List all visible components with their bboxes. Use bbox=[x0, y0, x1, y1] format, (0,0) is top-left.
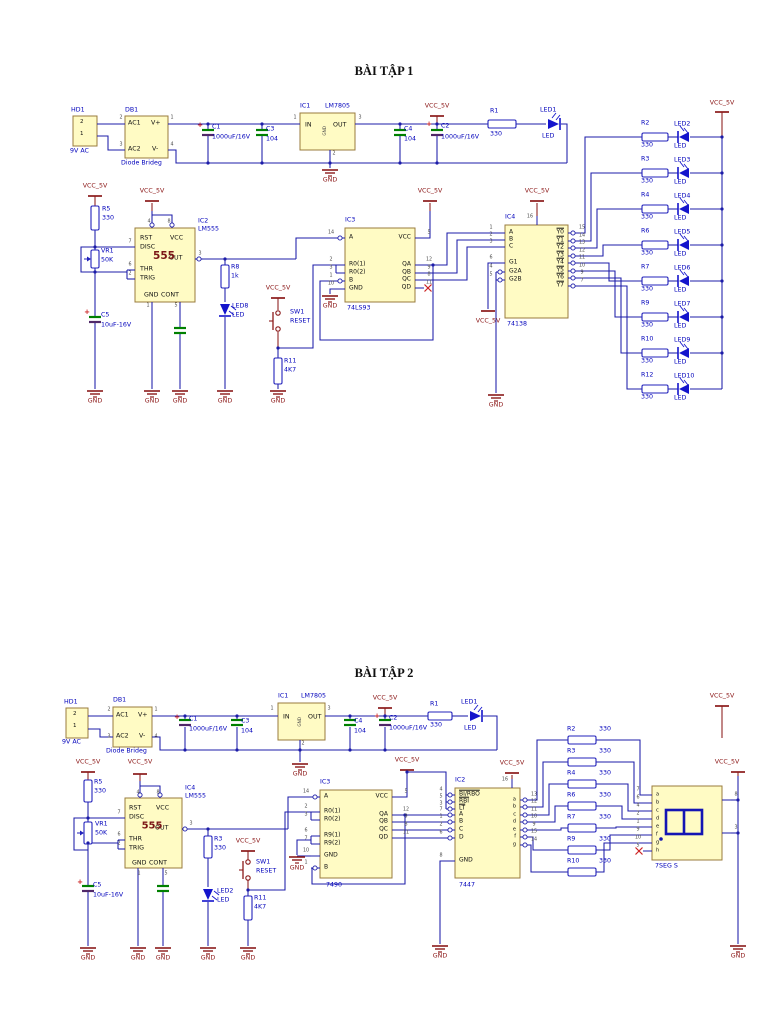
label: 4 bbox=[147, 220, 150, 225]
label: 1 bbox=[154, 708, 157, 713]
ic2-7447-pin-name: d bbox=[513, 819, 516, 824]
label: CONT bbox=[149, 861, 167, 867]
ic3-7490-pin-name: GND bbox=[324, 853, 338, 859]
ic3-74ls93-pin-name: QD bbox=[402, 285, 411, 291]
ic2-7447-pin-number: 10 bbox=[531, 815, 537, 820]
gnd-label: GND bbox=[323, 178, 337, 184]
seven-seg-display-pin-number: 2 bbox=[636, 812, 639, 817]
ic4-74138-pin-name: G1 bbox=[509, 260, 517, 266]
label: AC1 bbox=[116, 713, 129, 719]
label: LED4 bbox=[674, 194, 690, 200]
label: V- bbox=[139, 734, 145, 740]
label: LED8 bbox=[232, 304, 248, 310]
label: R4 bbox=[641, 193, 649, 199]
label: LED bbox=[674, 144, 686, 150]
ic3-7490-pin-name: QD bbox=[379, 835, 388, 841]
ic4-74138-pin-name: G2A bbox=[509, 269, 522, 275]
ic2-7447-pin-number: 1 bbox=[439, 815, 442, 820]
label: C4 bbox=[354, 719, 362, 725]
gnd-label: GND bbox=[293, 772, 307, 778]
label: 8 bbox=[167, 220, 170, 225]
gnd-label: GND bbox=[271, 399, 285, 405]
ic3-74ls93-pin-name: QA bbox=[402, 262, 411, 268]
schematic-page: IC374LS93A14R0(1)2R0(2)3B1GND10VCC5QA12Q… bbox=[0, 0, 768, 1024]
label: 2 bbox=[73, 712, 77, 718]
label: 4 bbox=[154, 735, 157, 740]
label: VCC bbox=[156, 806, 169, 812]
title-exercise-2: BÀI TẬP 2 bbox=[355, 667, 414, 680]
label: LED bbox=[674, 324, 686, 330]
ic3-74ls93-pin-name: GND bbox=[349, 286, 363, 292]
label: 1 bbox=[170, 116, 173, 121]
label: 330 bbox=[641, 179, 653, 185]
label: 1 bbox=[137, 872, 140, 877]
gnd-label: GND bbox=[156, 956, 170, 962]
ic2-7447-pin-number: 14 bbox=[531, 838, 537, 843]
label: 2 bbox=[301, 742, 304, 747]
label: 3 bbox=[107, 735, 110, 740]
ic2-7447-pin-name: a bbox=[513, 797, 516, 802]
label: 1000uF/16V bbox=[389, 726, 427, 732]
label: C5 bbox=[93, 883, 101, 889]
label: LM555 bbox=[185, 794, 206, 800]
label: LED1 bbox=[540, 108, 556, 114]
label: R11 bbox=[284, 359, 296, 365]
ic2-7447-pin-name: b bbox=[513, 804, 516, 809]
label: 6 bbox=[128, 263, 131, 268]
label: LED bbox=[674, 180, 686, 186]
label: 330 bbox=[641, 143, 653, 149]
ic4-74138-pin-name: Y4 bbox=[557, 260, 564, 266]
ic4-74138-pin-number: 16 bbox=[527, 215, 533, 220]
label: R6 bbox=[641, 229, 649, 235]
label: V+ bbox=[138, 713, 148, 719]
label: 10uF-16V bbox=[93, 893, 123, 899]
label: 2 bbox=[80, 120, 84, 126]
label: VCC bbox=[170, 236, 183, 242]
label: VR1 bbox=[101, 249, 114, 255]
label: 50K bbox=[101, 258, 113, 264]
seven-seg-display-pin-number: 6 bbox=[636, 796, 639, 801]
label: R3 bbox=[641, 157, 649, 163]
label: 3 bbox=[119, 143, 122, 148]
ic2-7447-pin-number: 9 bbox=[532, 823, 535, 828]
label: + bbox=[426, 121, 432, 128]
ic2-part: LM555 bbox=[198, 227, 219, 233]
label: LED9 bbox=[674, 338, 690, 344]
ic2-7447-pin-name: D bbox=[459, 835, 464, 841]
label: R1 bbox=[430, 702, 438, 708]
db1-part: Diode Brideg bbox=[121, 161, 162, 167]
ic4-74138-pin-name: Y7 bbox=[557, 283, 564, 289]
label: 104 bbox=[266, 137, 278, 143]
ic3-7490-pin-number: 3 bbox=[304, 813, 307, 818]
ic3-7490-pin-number: 2 bbox=[304, 805, 307, 810]
gnd-label: GND bbox=[433, 954, 447, 960]
vcc-label: VCC_5V bbox=[76, 760, 101, 766]
label: LED bbox=[674, 396, 686, 402]
title-exercise-1: BÀI TẬP 1 bbox=[355, 65, 414, 78]
ic2-555-label: 555 bbox=[153, 251, 175, 262]
label: AC2 bbox=[128, 147, 141, 153]
label: 5 bbox=[164, 872, 167, 877]
label: IN bbox=[283, 715, 290, 721]
ic3-74ls93-pin-name: B bbox=[349, 278, 353, 284]
ic3-7490-pin-name: QB bbox=[379, 819, 388, 825]
label: LED bbox=[674, 360, 686, 366]
seven-seg-display-pin-name: d bbox=[656, 816, 659, 821]
vcc-label: VCC_5V bbox=[476, 319, 501, 325]
label: OUT bbox=[333, 123, 346, 129]
label: R3 bbox=[214, 837, 222, 843]
ic4-74138-pin-number: 14 bbox=[579, 234, 585, 239]
gnd-label: GND bbox=[218, 399, 232, 405]
label: IC1 bbox=[278, 694, 288, 700]
label: LED6 bbox=[674, 266, 690, 272]
label: RST bbox=[129, 806, 141, 812]
label: C5 bbox=[101, 313, 109, 319]
ic2-7447-pin-name: C bbox=[459, 827, 463, 833]
label: R2 bbox=[567, 727, 575, 733]
ic2-7447-pin-name: c bbox=[513, 812, 516, 817]
gnd-label: GND bbox=[489, 403, 503, 409]
ic3-7490-pin-number: 8 bbox=[404, 823, 407, 828]
label: LED7 bbox=[674, 302, 690, 308]
label: 330 bbox=[430, 723, 442, 729]
vcc-label: VCC_5V bbox=[140, 189, 165, 195]
vcc-label: VCC_5V bbox=[425, 104, 450, 110]
label: Diode Brideg bbox=[106, 749, 147, 755]
ic3-7490-pin-number: 11 bbox=[403, 831, 409, 836]
label: HD1 bbox=[64, 700, 78, 706]
label: RST bbox=[140, 236, 152, 242]
label: 4 bbox=[136, 791, 139, 796]
label: 330 bbox=[599, 771, 611, 777]
label: 330 bbox=[641, 215, 653, 221]
label: 1 bbox=[73, 724, 77, 730]
label: 8 bbox=[156, 791, 159, 796]
label: + bbox=[84, 309, 90, 316]
ic3-74ls93-pin-number: 9 bbox=[427, 266, 430, 271]
gnd-label: GND bbox=[241, 956, 255, 962]
ic4-74138-pin-name: Y2 bbox=[557, 245, 564, 251]
label: 330 bbox=[94, 789, 106, 795]
ic2-7447-pin-number: 15 bbox=[531, 830, 537, 835]
label: LED bbox=[464, 726, 476, 732]
ic1-ref: IC1 bbox=[300, 104, 310, 110]
ic3-7490-pin-number: 12 bbox=[403, 808, 409, 813]
label: C1 bbox=[212, 125, 220, 131]
ic2-7447-pin-name: B bbox=[459, 819, 463, 825]
ic4-555-label: 555 bbox=[142, 822, 163, 832]
label: R9 bbox=[641, 301, 649, 307]
seven-seg-display-pin-number: 1 bbox=[636, 820, 639, 825]
label: R5 bbox=[94, 780, 102, 786]
label: LED5 bbox=[674, 230, 690, 236]
vcc-label: VCC_5V bbox=[395, 758, 420, 764]
ic3-74ls93-pin-number: 1 bbox=[329, 274, 332, 279]
ic4-74138-pin-name: G2B bbox=[509, 277, 522, 283]
ic3-7490-pin-name: R0(1) bbox=[324, 809, 341, 815]
label: THR bbox=[129, 837, 142, 843]
ic3-7490-pin-name: R0(2) bbox=[324, 817, 341, 823]
label: 7 bbox=[128, 240, 131, 245]
seven-seg-display-pin-number: 4 bbox=[636, 804, 639, 809]
ic4-74138-pin-name: Y6 bbox=[557, 275, 564, 281]
vcc-label: VCC_5V bbox=[715, 760, 740, 766]
label: 6 bbox=[117, 833, 120, 838]
label: LED1 bbox=[461, 700, 477, 706]
label: R11 bbox=[254, 896, 266, 902]
vcc-label: VCC_5V bbox=[525, 189, 550, 195]
label: 1 bbox=[270, 707, 273, 712]
label: 1000uF/16V bbox=[189, 727, 227, 733]
label: GND bbox=[323, 126, 327, 136]
ic3-74ls93-pin-number: 5 bbox=[427, 231, 430, 236]
ic2-7447-pin-name: f bbox=[514, 834, 516, 839]
ic4-74138-pin-number: 3 bbox=[489, 240, 492, 245]
label: DB1 bbox=[113, 698, 126, 704]
ic2-7447-ref: IC2 bbox=[455, 778, 465, 784]
label: R12 bbox=[641, 373, 653, 379]
label: LED bbox=[674, 288, 686, 294]
label: 330 bbox=[599, 815, 611, 821]
ic2-7447-pin-name: GND bbox=[459, 858, 473, 864]
label: R5 bbox=[102, 207, 110, 213]
ic3-74ls93-pin-name: A bbox=[349, 235, 353, 241]
gnd-label: GND bbox=[81, 956, 95, 962]
ic4-74138-pin-number: 5 bbox=[489, 273, 492, 278]
label: 2 bbox=[128, 272, 131, 277]
ic3-7490-pin-name: R9(1) bbox=[324, 833, 341, 839]
label: R4 bbox=[567, 771, 575, 777]
label: C1 bbox=[189, 717, 197, 723]
label: C4 bbox=[404, 127, 412, 133]
label: 1000uF/16V bbox=[212, 135, 250, 141]
label: 330 bbox=[599, 837, 611, 843]
ic3-7490-pin-name: QC bbox=[379, 827, 388, 833]
label: R1 bbox=[490, 109, 498, 115]
vcc-label: VCC_5V bbox=[266, 286, 291, 292]
label: 330 bbox=[102, 216, 114, 222]
label: LM7805 bbox=[301, 694, 326, 700]
label: 1k bbox=[231, 274, 239, 280]
seven-seg-display-pin-name: f bbox=[656, 832, 658, 837]
label: LED bbox=[674, 216, 686, 222]
label: R7 bbox=[567, 815, 575, 821]
gnd-label: GND bbox=[323, 304, 337, 310]
ic4-74138-pin-number: 13 bbox=[579, 241, 585, 246]
label: 330 bbox=[599, 727, 611, 733]
label: 5 bbox=[174, 304, 177, 309]
label: R10 bbox=[567, 859, 579, 865]
label: 3 bbox=[327, 707, 330, 712]
label: R9 bbox=[567, 837, 575, 843]
ic1-part: LM7805 bbox=[325, 104, 350, 110]
label: 104 bbox=[354, 729, 366, 735]
label: TRIG bbox=[140, 276, 155, 282]
label: R6 bbox=[567, 793, 575, 799]
ic4-74138-pin-number: 10 bbox=[579, 264, 585, 269]
ic2-7447-pin-number: 6 bbox=[439, 831, 442, 836]
ic3-7490-pin-number: 7 bbox=[304, 837, 307, 842]
ic3-7490-pin-number: 9 bbox=[404, 815, 407, 820]
ic3-7490-pin-name: B bbox=[324, 865, 328, 871]
ic2-ref: IC2 bbox=[198, 219, 208, 225]
label: VR1 bbox=[95, 822, 108, 828]
ic2-7447-pin-number: 2 bbox=[439, 823, 442, 828]
ic4-74138-pin-number: 12 bbox=[579, 249, 585, 254]
label: 1 bbox=[146, 304, 149, 309]
ic3-74ls93-pin-name: VCC bbox=[399, 235, 411, 241]
label: 1 bbox=[80, 132, 84, 138]
ic4-74138-pin-number: 9 bbox=[580, 271, 583, 276]
ic4-74138-pin-number: 4 bbox=[489, 265, 492, 270]
ic3-74ls93-pin-number: 11 bbox=[426, 281, 432, 286]
ic2-7447-pin-number: 8 bbox=[439, 854, 442, 859]
label: AC1 bbox=[128, 121, 141, 127]
seven-seg-display-pin-number: 7 bbox=[636, 788, 639, 793]
vcc-label: VCC_5V bbox=[373, 696, 398, 702]
label: THR bbox=[140, 267, 153, 273]
ic3-7490-pin-number: 5 bbox=[404, 790, 407, 795]
label: + bbox=[374, 713, 380, 720]
seven-seg-display-pin-name: e bbox=[656, 824, 659, 829]
label: IN bbox=[305, 123, 312, 129]
ic2-7447-pin-number: 11 bbox=[531, 808, 537, 813]
label: R10 bbox=[641, 337, 653, 343]
label: GND bbox=[132, 861, 146, 867]
ic3-74ls93-pin-number: 2 bbox=[329, 258, 332, 263]
label: R3 bbox=[567, 749, 575, 755]
ic2-7447-pin-number: 16 bbox=[502, 778, 508, 783]
label: 330 bbox=[599, 793, 611, 799]
label: V- bbox=[152, 147, 158, 153]
label: R2 bbox=[641, 121, 649, 127]
seven-seg-display-pin-number: 8 bbox=[734, 793, 737, 798]
ic3-74ls93-ref: IC3 bbox=[345, 218, 355, 224]
ic2-7447-pin-name: g bbox=[513, 842, 516, 847]
label: LED bbox=[217, 898, 229, 904]
label: 2 bbox=[332, 152, 335, 157]
ic3-7490-pin-number: 6 bbox=[304, 829, 307, 834]
seven-seg-display-pin-name: b bbox=[656, 800, 659, 805]
label: C2 bbox=[389, 716, 397, 722]
label: LED bbox=[542, 134, 554, 140]
ic2-7447-pin-number: 7 bbox=[439, 808, 442, 813]
label: 104 bbox=[241, 729, 253, 735]
ic4-74138-pin-number: 7 bbox=[580, 279, 583, 284]
seven-seg-display-pin-name: g bbox=[656, 840, 659, 845]
label: 2 bbox=[117, 842, 120, 847]
label: SW1 bbox=[256, 860, 270, 866]
label: 9V AC bbox=[62, 740, 81, 746]
ic4-74138-pin-number: 2 bbox=[489, 233, 492, 238]
label: 330 bbox=[641, 323, 653, 329]
ic4-74138-part: 74138 bbox=[507, 322, 527, 328]
ic4-74138-pin-number: 6 bbox=[489, 256, 492, 261]
ic2-7447-part: 7447 bbox=[459, 883, 475, 889]
ic3-74ls93-pin-name: R0(1) bbox=[349, 262, 366, 268]
label: 3 bbox=[189, 822, 192, 827]
label: GND bbox=[144, 293, 158, 299]
label: + bbox=[197, 122, 203, 129]
ic3-7490-pin-name: A bbox=[324, 794, 328, 800]
ic4-74138-pin-number: 1 bbox=[489, 226, 492, 231]
label: C3 bbox=[266, 127, 274, 133]
ic3-74ls93-pin-number: 12 bbox=[426, 258, 432, 263]
label: 330 bbox=[641, 395, 653, 401]
ic4-74138-pin-number: 11 bbox=[579, 256, 585, 261]
ic2-7447-pin-number: 12 bbox=[531, 800, 537, 805]
schematic-labels: IC374LS93A14R0(1)2R0(2)3B1GND10VCC5QA12Q… bbox=[0, 0, 768, 1024]
label: C3 bbox=[241, 719, 249, 725]
label: 330 bbox=[599, 749, 611, 755]
ic3-74ls93-pin-number: 3 bbox=[329, 266, 332, 271]
ic4-74138-pin-number: 15 bbox=[579, 226, 585, 231]
label: 2 bbox=[119, 116, 122, 121]
label: 50K bbox=[95, 831, 107, 837]
label: R8 bbox=[231, 265, 239, 271]
label: LED bbox=[674, 252, 686, 258]
label: 4K7 bbox=[284, 368, 296, 374]
label: RESET bbox=[290, 319, 310, 325]
label: GND bbox=[298, 717, 302, 727]
label: LED bbox=[232, 313, 244, 319]
label: 330 bbox=[490, 132, 502, 138]
label: 330 bbox=[214, 846, 226, 852]
label: 1 bbox=[293, 116, 296, 121]
seven-seg-display-part: 7SEG S bbox=[655, 864, 678, 870]
label: C2 bbox=[441, 124, 449, 130]
label: 104 bbox=[404, 137, 416, 143]
label: 3 bbox=[358, 116, 361, 121]
ic3-7490-part: 7490 bbox=[326, 883, 342, 889]
label: 330 bbox=[641, 359, 653, 365]
ic4-74138-ref: IC4 bbox=[505, 215, 515, 221]
seven-seg-display-pin-name: c bbox=[656, 808, 659, 813]
label: + bbox=[77, 879, 83, 886]
label: 7 bbox=[117, 811, 120, 816]
vcc-label: VCC_5V bbox=[500, 761, 525, 767]
ic4-74138-pin-name: Y0 bbox=[557, 230, 564, 236]
seven-seg-display-pin-number: 10 bbox=[635, 836, 641, 841]
ic3-7490-pin-name: VCC bbox=[376, 794, 388, 800]
ic3-7490-pin-name: R9(2) bbox=[324, 841, 341, 847]
label: CONT bbox=[161, 293, 179, 299]
hd1-value: 9V AC bbox=[70, 149, 89, 155]
vcc-label: VCC_5V bbox=[83, 184, 108, 190]
ic3-74ls93-pin-number: 8 bbox=[427, 273, 430, 278]
label: + bbox=[174, 714, 180, 721]
gnd-label: GND bbox=[173, 399, 187, 405]
ic3-74ls93-pin-name: R0(2) bbox=[349, 270, 366, 276]
ic3-7490-ref: IC3 bbox=[320, 780, 330, 786]
ic3-7490-pin-number: 10 bbox=[303, 849, 309, 854]
seven-seg-display-pin-number: 9 bbox=[636, 828, 639, 833]
ic2-7447-pin-name: e bbox=[513, 827, 516, 832]
gnd-label: GND bbox=[201, 956, 215, 962]
hd1-ref: HD1 bbox=[71, 108, 85, 114]
label: SW1 bbox=[290, 310, 304, 316]
label: AC2 bbox=[116, 734, 129, 740]
label: TRIG bbox=[129, 846, 144, 852]
label: LED10 bbox=[674, 374, 694, 380]
ic3-74ls93-part: 74LS93 bbox=[347, 306, 371, 312]
label: 330 bbox=[641, 287, 653, 293]
label: 10uF-16V bbox=[101, 323, 131, 329]
gnd-label: GND bbox=[290, 866, 304, 872]
